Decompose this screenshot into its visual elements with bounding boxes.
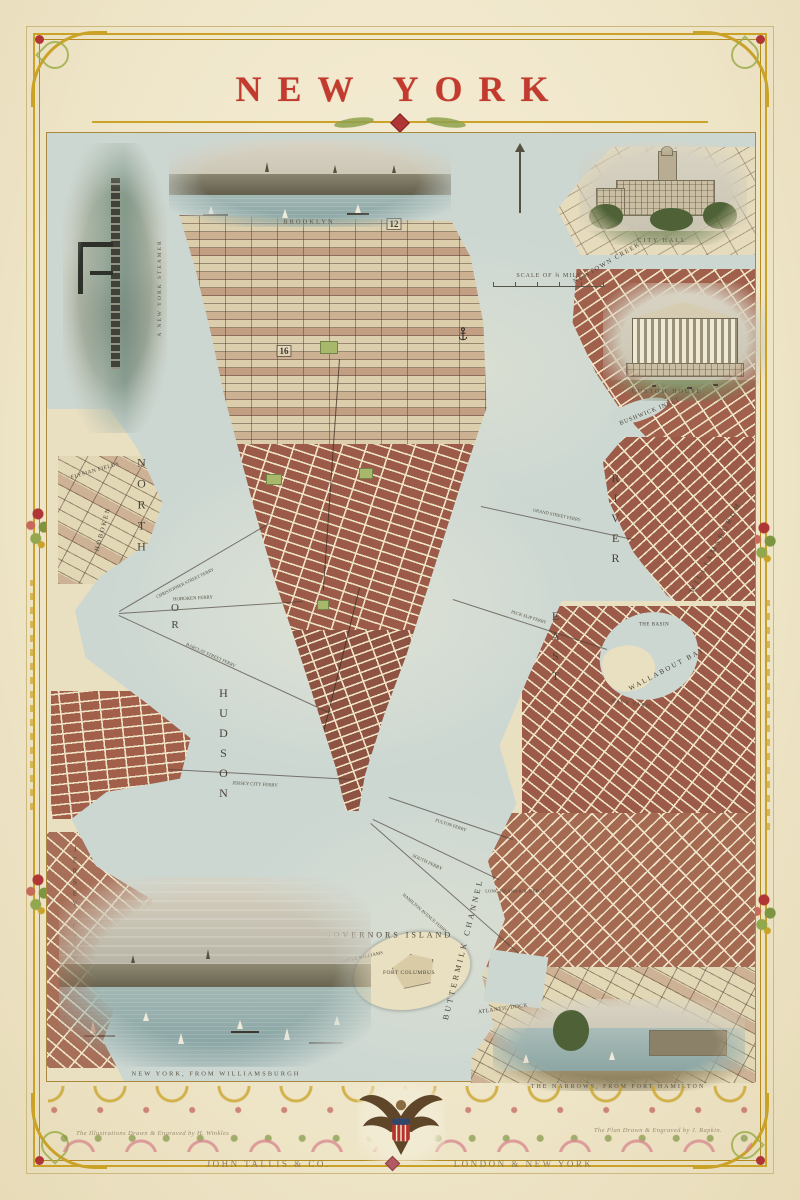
custom-house-base	[626, 363, 745, 377]
custom-house-columns	[632, 318, 738, 365]
church-spire-icon	[206, 949, 210, 959]
credit-plan: The Plan Drawn & Engraved by J. Rapkin.	[594, 1127, 722, 1134]
vignette-skyline	[169, 174, 451, 197]
vignette-custom-house	[603, 283, 765, 401]
tree-icon	[650, 208, 694, 230]
sailboat-icon	[523, 1054, 529, 1063]
vignette-caption-city-hall: CITY HALL	[637, 238, 686, 244]
ship-hull-icon	[84, 1035, 115, 1037]
vignette-steamer	[63, 143, 167, 433]
sailboat-icon	[90, 1021, 96, 1033]
sailboat-icon	[208, 206, 214, 215]
tree-icon	[703, 202, 737, 229]
sailboat-icon	[178, 1033, 184, 1044]
title-divider	[92, 121, 708, 123]
steamer-walking-beam	[78, 242, 113, 247]
imprint-cities: LONDON & NEW YORK	[454, 1159, 594, 1169]
vignette-brooklyn	[169, 139, 451, 227]
vignette-williamsburgh-view	[59, 877, 371, 1067]
map-sheet: NEW YORK	[0, 0, 800, 1200]
ward-number: 16	[277, 345, 292, 357]
church-spire-icon	[333, 165, 337, 173]
map-canvas: SCALE OF ¾ MILE HOBOKEN FERRYCHRISTOPHER…	[46, 132, 756, 1082]
figure-icon	[713, 384, 718, 386]
corner-rosette	[756, 35, 765, 44]
vignette-caption-williamsburgh: NEW YORK, FROM WILLIAMSBURGH	[132, 1071, 301, 1078]
church-spire-icon	[265, 162, 269, 172]
corner-rosette	[35, 35, 44, 44]
ship-hull-icon	[309, 1042, 343, 1044]
tree-icon	[553, 1010, 588, 1050]
vignette-caption-custom-house: CUSTOM HOUSE	[632, 389, 702, 395]
custom-house-pediment	[632, 302, 736, 318]
vignette-narrows-view	[493, 999, 745, 1091]
church-spire-icon	[392, 165, 396, 173]
sailboat-icon	[143, 1012, 149, 1021]
page-title: NEW YORK	[0, 68, 800, 110]
sailboat-icon	[355, 204, 361, 213]
ship-hull-icon	[231, 1031, 259, 1033]
border-ribbon	[30, 580, 34, 810]
vignette-caption-brooklyn: BROOKLYN	[283, 219, 334, 226]
imprint-ornament-icon	[384, 1156, 400, 1172]
ship-hull-icon	[347, 213, 370, 215]
sailboat-icon	[237, 1020, 243, 1029]
ship-hull-icon	[203, 214, 228, 216]
sailboat-icon	[609, 1051, 615, 1060]
imprint-publisher: JOHN TALLIS & CO.	[207, 1159, 331, 1169]
steamer-walking-beam	[78, 242, 83, 294]
sailboat-icon	[334, 1016, 340, 1025]
vignette-caption-steamer: A NEW YORK STEAMER	[157, 239, 163, 336]
imprint-row: JOHN TALLIS & CO. LONDON & NEW YORK	[0, 1158, 800, 1169]
vignette-water	[59, 987, 371, 1067]
steamer-funnel	[90, 271, 113, 275]
credit-illustrations: The Illustrations Drawn & Engraved by H.…	[76, 1130, 229, 1137]
border-ribbon	[766, 600, 770, 830]
shore-buildings	[649, 1030, 727, 1056]
church-spire-icon	[131, 955, 135, 963]
vignette-city-hall	[579, 143, 747, 245]
city-hall-cupola	[661, 146, 673, 156]
tree-icon	[589, 204, 623, 228]
figure-icon	[652, 385, 657, 387]
sailboat-icon	[282, 209, 288, 218]
sailboat-icon	[284, 1028, 290, 1040]
eagle-crest-icon	[357, 1082, 445, 1162]
